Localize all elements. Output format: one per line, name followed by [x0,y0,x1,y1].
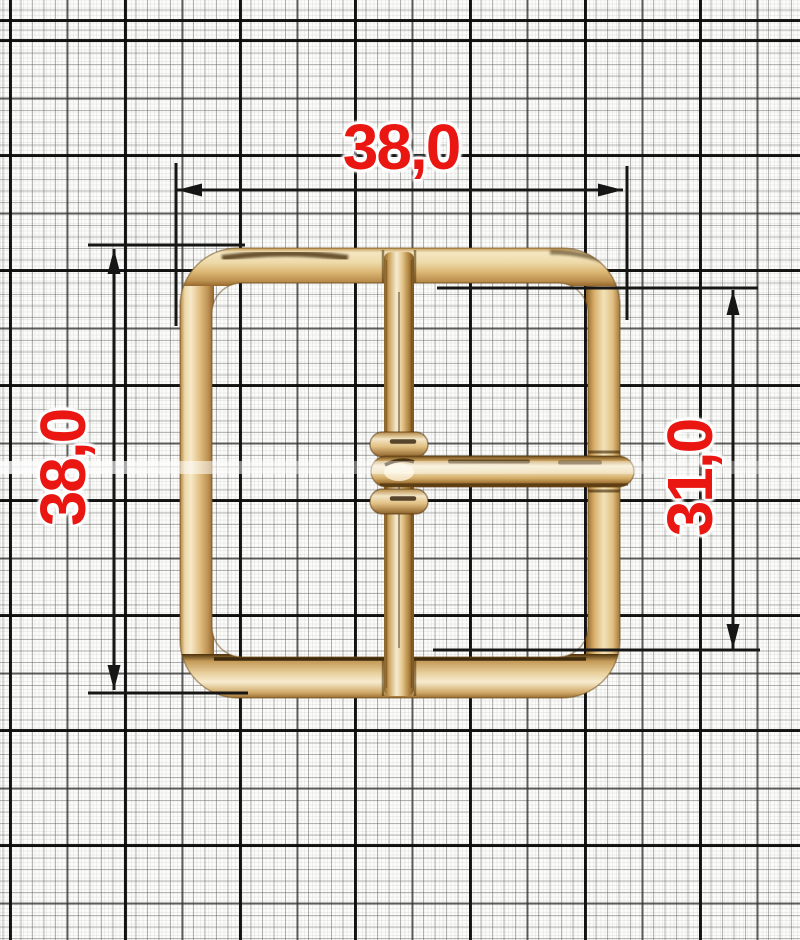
width-arrowhead-right [598,184,623,197]
prong-knuckle-top [370,432,428,457]
width-arrowhead-left [177,184,202,197]
prong-knuckle-bottom [370,489,428,514]
inner-height-arrowhead-top [727,290,740,315]
height-dimension [88,245,248,693]
dimension-label-height: 38,0 [31,410,95,527]
prong-head-highlight [384,463,414,481]
frame-left-tube [180,248,214,698]
inner-height-arrowhead-bottom [727,624,740,649]
height-arrowhead-bottom [108,665,121,690]
dimension-label-width: 38,0 [343,115,460,179]
dimension-label-inner-height: 31,0 [658,420,722,537]
graph-paper-background: 38,0 38,0 31,0 [0,0,800,940]
height-arrowhead-top [108,249,121,274]
